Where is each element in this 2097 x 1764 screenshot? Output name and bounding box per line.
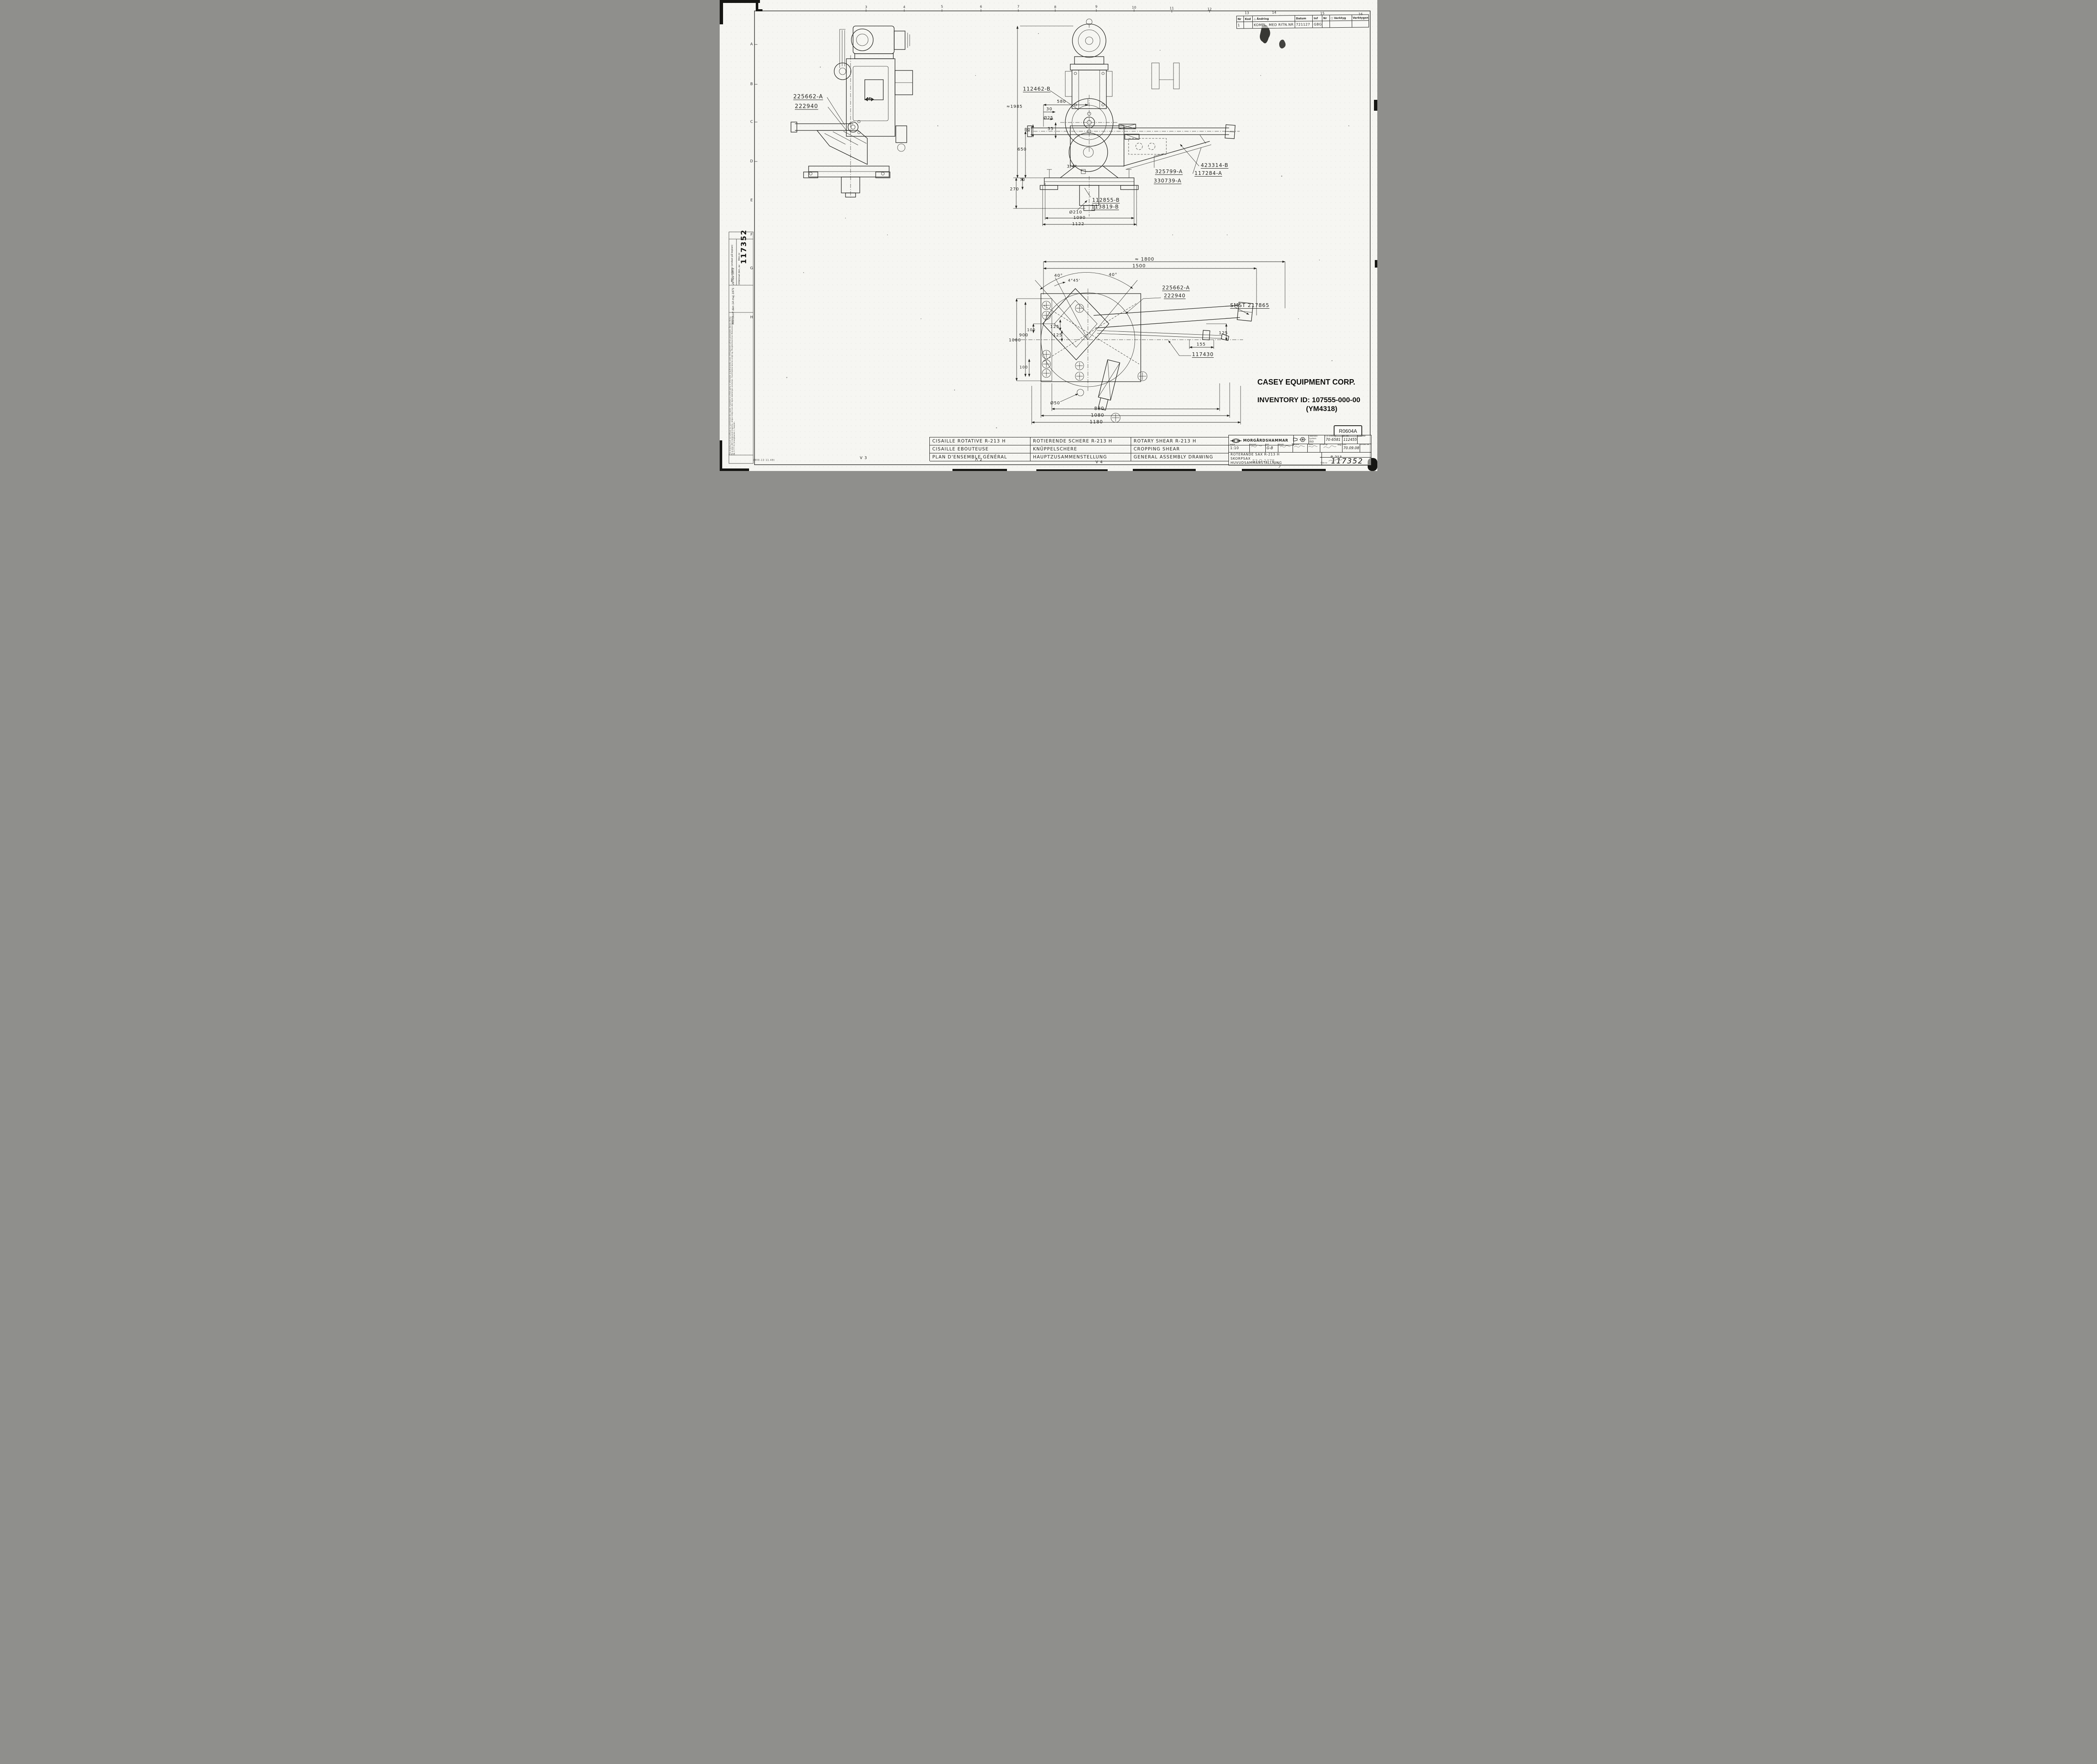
stand-label: Stand: [1293, 444, 1307, 446]
revision-nr: 1: [1237, 22, 1244, 28]
dimension-label: 1090: [1073, 216, 1085, 220]
col-verktyg-label: Verktyg: [1334, 16, 1346, 19]
side-view-drawing: [791, 26, 913, 198]
title-french-2: CISAILLE EBOUTEUSE: [930, 445, 1030, 453]
ruler-number: 12: [1207, 8, 1212, 11]
zone-letter: B: [750, 82, 753, 86]
rit-value: G-B: [1265, 446, 1278, 450]
title-block-english: ROTARY SHEAR R-213 H CROPPING SHEAR GENE…: [1131, 437, 1229, 461]
title-german-3: HAUPTZUSAMMENSTELLUNG: [1030, 453, 1131, 461]
part-number-label: 112855-B: [1092, 198, 1120, 203]
zone-letter: G: [750, 266, 753, 271]
rit-cell: Rit G-B: [1265, 444, 1278, 453]
part-number-label: 325799-A: [1155, 169, 1183, 174]
front-view-drawing: [1013, 19, 1240, 226]
company-stamp: CASEY EQUIPMENT CORP.: [1257, 378, 1355, 387]
part-number-label: 330739-A: [1154, 178, 1181, 183]
part-number-label: 225662-A: [1162, 285, 1190, 290]
zone-letter: C: [750, 120, 753, 124]
ruler-number: 10: [1132, 6, 1136, 10]
dimension-label: 30: [1046, 107, 1053, 112]
inventory-id-stamp-line2: (YM4318): [1306, 405, 1337, 413]
ruler-number: 7: [1017, 5, 1019, 9]
engineering-drawing-sheet: 345678910111213141516ABCDEFGH225662-A222…: [720, 0, 1377, 471]
reg-label: Reg: [1337, 444, 1341, 447]
ritnnr-value: 117352: [1331, 457, 1363, 465]
title-block-german: ROTIERENDE SCHERE R-213 H KNÜPPELSCHERE …: [1030, 437, 1131, 461]
col-nr2: Nr: [1322, 15, 1330, 21]
dimension-label: ≈ 1800: [1135, 257, 1155, 262]
title-block-french: CISAILLE ROTATIVE R-213 H CISAILLE EBOUT…: [929, 437, 1030, 461]
ruler-number: 3: [865, 5, 867, 9]
date-cell: Det 70.09.08: [1342, 444, 1360, 453]
order-number-value: 70-6581: [1324, 438, 1342, 442]
kontr-cell: Kontr: [1278, 444, 1293, 453]
ruler-number: 4: [903, 5, 905, 9]
tolerance-cell: Tolerans- system ISO: [1309, 435, 1325, 444]
part-number-label: 222940: [1164, 293, 1186, 298]
issued-label: Utlämnat den, av: [738, 265, 741, 285]
dimension-label: Ø50: [1050, 401, 1060, 406]
dimension-label: 1000: [1009, 338, 1021, 343]
dimension-label: 125: [1219, 331, 1228, 336]
part-number-label: SMST 217865: [1230, 303, 1270, 308]
part-number-label: 113819-B: [1091, 204, 1119, 209]
projection-symbol-icon: [1293, 436, 1308, 443]
triangle-icon: △: [1254, 17, 1256, 21]
dimension-label: Ø210: [1069, 211, 1082, 215]
zone-letter: F: [750, 233, 752, 237]
col-inf: Inf: [1313, 16, 1322, 21]
dimension-label: 3/4": [1067, 165, 1077, 169]
revision-table: Nr Kod △Ändring Datum Inf Nr ▢Verktyg Ve…: [1236, 14, 1369, 29]
proprietary-fine-print: The drawing must not without our permiss…: [729, 317, 746, 455]
section-mark-label: V 3: [860, 457, 867, 461]
part-number-label: 423314-B: [1201, 163, 1228, 168]
ritnnr-label: Ritn-nr: [1320, 462, 1327, 464]
dimension-label: 100: [1020, 366, 1028, 370]
jfr-ritn-value: 112455: [1342, 438, 1357, 442]
dimension-label: 35: [1048, 127, 1054, 131]
angle-label: 40°: [1054, 274, 1063, 278]
ruler-number: 14: [1272, 11, 1276, 15]
angle-label: 4°45': [1068, 279, 1080, 283]
manufacturer-title-block: MORGÅRDSHAMMAR Tolerans- system ISO 1:a …: [1228, 435, 1371, 466]
order-number-cell: 1:a ordernr 70-6581: [1324, 435, 1342, 444]
view-marker-label: M: [867, 97, 872, 101]
dimension-label: 1122: [1072, 222, 1084, 226]
scale-value: 1:10: [1229, 446, 1249, 450]
konstr-cell: Konstr: [1249, 444, 1266, 453]
konstr-label: Konstr: [1249, 444, 1265, 446]
revision-kod: [1244, 22, 1253, 28]
revision-row: 1 KOMPL. MED RITN.NR 721127 GBG: [1237, 20, 1369, 28]
revision-andring: KOMPL. MED RITN.NR: [1253, 21, 1295, 28]
dimension-label: 880: [1094, 406, 1104, 411]
dimension-label: 900: [1019, 333, 1028, 338]
col-andring: △Ändring: [1253, 16, 1295, 21]
col-verktygsnr: Verktygsnr: [1352, 15, 1369, 20]
ritn-nr-label: Ritn-nr: [738, 253, 741, 261]
part-number-label: 222940: [795, 104, 818, 109]
zone-letter: D: [750, 159, 753, 164]
revision-datum: 721127: [1295, 21, 1313, 28]
ritnnr-cell: Ritn-nr 117352: [1320, 457, 1371, 465]
title-english-3: GENERAL ASSEMBLY DRAWING: [1131, 453, 1229, 461]
col-datum: Datum: [1295, 16, 1313, 21]
col-kod: Kod: [1244, 16, 1253, 21]
title-english-1: ROTARY SHEAR R-213 H: [1131, 437, 1229, 445]
inventory-id-stamp: INVENTORY ID: 107555-000-00: [1257, 396, 1360, 404]
revision-verktygsnr: [1352, 21, 1369, 27]
godk-label: Godk: [1307, 444, 1320, 446]
title-block-swedish: ROTERANDE SAX R-213 H SKORPSAX HUVUDSAMM…: [1229, 452, 1322, 466]
microfilm-handwritten-note: Mikrokort den 14 maj 1971 · 28 nov 1972: [731, 268, 735, 324]
ersatt-av-cell: Ersatt av: [1360, 444, 1371, 453]
godk-cell: Godk: [1307, 444, 1320, 453]
title-swedish-1: ROTERANDE SAX R-213 H: [1231, 453, 1322, 457]
dimension-label: 100: [1027, 329, 1035, 333]
dimension-label: 650: [1017, 148, 1027, 152]
dimension-label: 125: [1050, 325, 1059, 329]
form-code-label: (900-13 11.49): [753, 460, 775, 462]
jfr-ritn-cell: Jfr ritn 112455: [1342, 435, 1358, 444]
part-number-label: 225662-A: [794, 94, 823, 100]
drawing-number-vertical: 117352: [740, 229, 748, 264]
tolerance-label-3: ISO: [1309, 440, 1324, 443]
ruler-number: 11: [1170, 7, 1174, 10]
part-number-label: 117284-A: [1194, 171, 1222, 176]
title-swedish-2: SKORPSAX: [1231, 457, 1322, 461]
plan-view-drawing: [1013, 262, 1285, 424]
dimension-label: ≈1985: [1007, 105, 1023, 109]
col-nr: Nr: [1237, 16, 1244, 21]
dimension-label: 270: [1010, 187, 1019, 192]
dimension-label: 70: [1020, 179, 1025, 182]
dimension-label: 580: [1057, 100, 1066, 104]
dimension-label: 155: [1197, 343, 1206, 347]
zone-letter: H: [750, 315, 753, 320]
dimension-label: Ø25: [1043, 116, 1054, 120]
stand-cell: Stand: [1293, 444, 1308, 453]
manufacturer-name: MORGÅRDSHAMMAR: [1243, 439, 1288, 443]
prodgr-cell: Prod-gr Reg: [1320, 444, 1342, 453]
part-number-label: 117430: [1192, 352, 1214, 357]
projection-symbol-cell: [1292, 435, 1309, 444]
dimension-label: 1180: [1090, 420, 1103, 424]
reference-box-label: R0604A: [1339, 428, 1357, 434]
title-german-1: ROTIERENDE SCHERE R-213 H: [1030, 437, 1131, 445]
zone-letter: E: [750, 198, 753, 203]
ersatt-av-label: Ersatt av: [1360, 444, 1371, 446]
title-french-1: CISAILLE ROTATIVE R-213 H: [930, 437, 1030, 445]
title-english-2: CROPPING SHEAR: [1131, 445, 1229, 453]
ruler-number: 9: [1095, 5, 1097, 9]
angle-label: 40°: [1109, 273, 1118, 277]
ruler-number: 5: [941, 5, 943, 9]
kontr-label: Kontr: [1278, 444, 1293, 446]
ruler-number: 8: [1054, 5, 1056, 9]
title-french-3: PLAN D'ENSEMBLE GÉNÉRAL: [930, 453, 1030, 461]
ersatter-label: Ersätter: [1357, 435, 1371, 438]
revision-verktyg: [1330, 21, 1352, 28]
dimension-label: 1500: [1132, 264, 1146, 268]
title-german-2: KNÜPPELSCHERE: [1030, 445, 1131, 453]
col-verktyg: ▢Verktyg: [1329, 15, 1352, 21]
title-swedish-3: HUVUDSAMMANSTÄLLNING: [1231, 461, 1322, 465]
date-value: 70.09.08: [1342, 446, 1360, 450]
revision-nr2: [1322, 21, 1330, 27]
dimension-label: 1080: [1091, 413, 1104, 418]
zone-letter: A: [750, 42, 753, 47]
square-icon: ▢: [1330, 16, 1333, 20]
revision-inf: GBG: [1313, 21, 1322, 28]
dimension-label: 80: [1025, 128, 1031, 132]
ruler-number: 6: [980, 5, 982, 9]
morgardshammar-logo-icon: [1231, 439, 1241, 443]
part-number-label: 112462-B: [1023, 86, 1051, 91]
dimension-label: 125: [1053, 333, 1062, 338]
ruler-number: 13: [1245, 11, 1249, 15]
scale-cell: Skala 1:10: [1229, 444, 1250, 453]
col-andring-label: Ändring: [1257, 17, 1269, 20]
ersatter-cell: Ersätter: [1357, 435, 1371, 444]
